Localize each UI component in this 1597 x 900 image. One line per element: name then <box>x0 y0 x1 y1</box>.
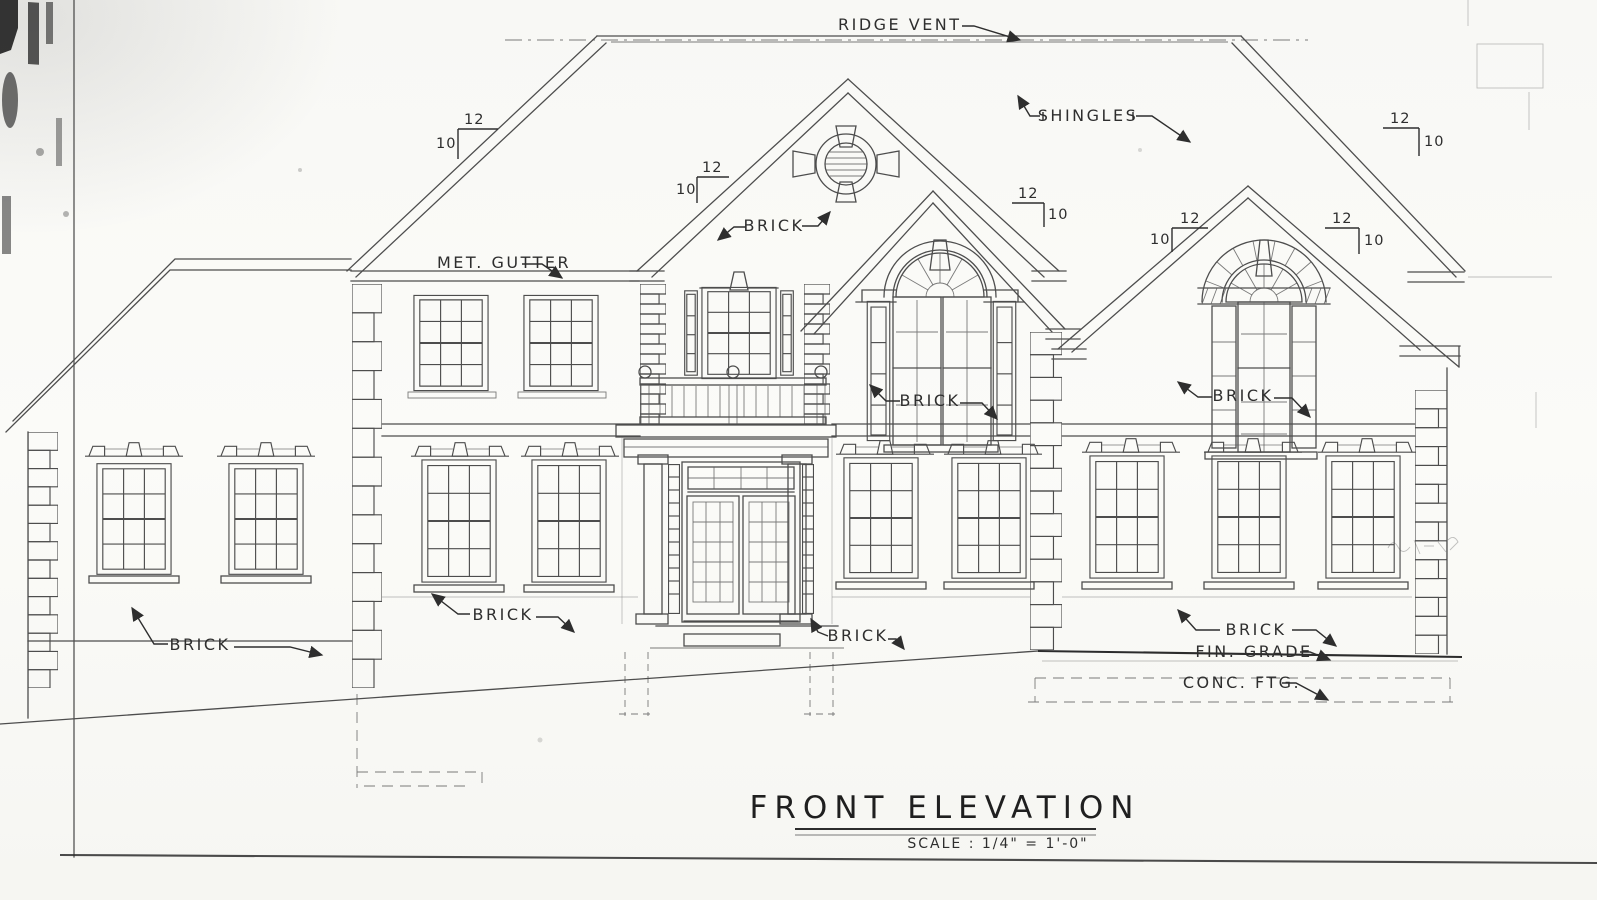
window-lintel <box>1082 439 1180 453</box>
drawing-title: FRONT ELEVATION <box>750 790 1141 826</box>
shutter <box>867 301 890 440</box>
brick-label: BRICK <box>170 635 231 654</box>
shingles-label: SHINGLES <box>1038 106 1138 125</box>
met-gutter-label: MET. GUTTER <box>437 253 571 272</box>
quoin-pilaster <box>640 284 666 424</box>
pitch-rise: 10 <box>676 182 696 198</box>
pitch-run: 12 <box>1390 111 1410 127</box>
window-lower <box>532 460 606 582</box>
brick-label: BRICK <box>744 216 805 235</box>
quoin-strip-left-wing <box>28 432 58 688</box>
main-roof <box>347 36 1465 282</box>
roof-slope-right <box>1241 36 1465 271</box>
brick-leader <box>888 639 904 649</box>
brick-leader <box>1178 610 1220 630</box>
brick-label: BRICK <box>1213 386 1274 405</box>
window-lower <box>1326 456 1400 578</box>
balcony <box>616 366 836 437</box>
round-louver-vent <box>793 126 899 202</box>
arched-window-crown <box>856 240 1024 302</box>
palladian-window <box>1198 240 1330 459</box>
ridge-vent-leader <box>962 26 1020 40</box>
pitch-rise: 10 <box>1424 134 1444 150</box>
brick-jamb <box>802 465 814 614</box>
foundation-dashed <box>357 694 482 788</box>
brick-label: BRICK <box>828 626 889 645</box>
title-block: FRONT ELEVATION SCALE : 1/4" = 1'-0" <box>750 790 1141 852</box>
window-lower <box>844 458 918 578</box>
window-sill <box>221 576 311 583</box>
floor-band <box>832 424 1030 436</box>
gable-rake-left <box>1058 186 1248 352</box>
pitch-marker: 12 10 <box>1383 111 1444 156</box>
brick-leader <box>870 385 900 401</box>
window-sill <box>836 582 926 589</box>
shingles-leader-left <box>1018 96 1040 116</box>
pitch-marker: 12 10 <box>1325 211 1384 254</box>
door-leaf <box>687 496 739 614</box>
window-sill <box>518 392 606 398</box>
shutter <box>993 301 1016 440</box>
window-sill <box>414 585 504 592</box>
window-lintel <box>411 443 509 457</box>
shutter <box>781 291 794 375</box>
window-lower <box>1090 456 1164 578</box>
grade-line <box>0 651 1038 724</box>
door-leaf <box>743 496 795 614</box>
brick-leader <box>132 608 168 644</box>
pitch-marker: 12 10 <box>1012 186 1068 227</box>
brick-label: BRICK <box>473 605 534 624</box>
pitch-run: 12 <box>1332 211 1352 227</box>
pier-footing-dashed <box>619 652 839 716</box>
window-sill <box>89 576 179 583</box>
window-upper <box>524 295 598 390</box>
window <box>97 464 171 575</box>
window-lower <box>952 458 1026 578</box>
window-sill <box>524 585 614 592</box>
pitch-run: 12 <box>1180 211 1200 227</box>
pitch-rise: 10 <box>1150 232 1170 248</box>
window-lower <box>422 460 496 582</box>
shingles-leader-right <box>1136 116 1190 142</box>
entry-pavilion <box>616 79 1066 716</box>
shutter <box>685 291 698 375</box>
fin-grade-label: FIN. GRADE <box>1195 642 1312 661</box>
window-lintel <box>1318 439 1416 453</box>
pitch-run: 12 <box>464 112 484 128</box>
window-lintel <box>85 443 183 457</box>
entry-columns <box>636 455 812 624</box>
brick-leader <box>536 617 574 632</box>
brick-leader <box>718 227 746 240</box>
brick-leader <box>234 647 322 655</box>
pitch-run: 12 <box>702 160 722 176</box>
quoin-strip-main-corner <box>352 284 382 688</box>
gable-rake-left <box>637 79 848 277</box>
roof-slope-left <box>347 36 597 271</box>
twin-window <box>893 297 991 445</box>
entry-steps <box>650 626 844 648</box>
balcony-deck <box>616 425 836 437</box>
window <box>229 464 303 575</box>
pitch-rise: 10 <box>1364 233 1384 249</box>
pitch-rise: 10 <box>1048 207 1068 223</box>
center-right-gable <box>801 191 1080 650</box>
brick-leader <box>811 619 828 636</box>
gable-rake-right <box>933 191 1065 332</box>
scan-box-top-right <box>1477 44 1543 88</box>
gutter-line <box>351 271 639 281</box>
drawing-scale: SCALE : 1/4" = 1'-0" <box>907 836 1088 852</box>
window-lintel <box>1204 439 1302 453</box>
brick-jamb <box>668 465 680 614</box>
brick-label: BRICK <box>900 391 961 410</box>
brick-label: BRICK <box>1226 620 1287 639</box>
entry-entablature <box>624 439 828 457</box>
window-sill <box>1318 582 1408 589</box>
elevation-drawing: RIDGE VENT SHINGLES MET. GUTTER BRICK BR… <box>0 0 1597 900</box>
window-sill <box>408 392 496 398</box>
right-gable <box>1052 186 1460 654</box>
scan-artifacts <box>0 0 1597 863</box>
main-block <box>351 271 640 788</box>
quoin-pilaster-mid <box>1030 332 1062 650</box>
ridge-vent-label: RIDGE VENT <box>838 15 962 34</box>
pitch-rise: 10 <box>436 136 456 152</box>
brick-leader <box>802 212 830 226</box>
quoin-strip-right-corner <box>1415 390 1447 654</box>
floor-band <box>382 424 640 436</box>
window-upper <box>414 295 488 390</box>
left-wing-roof <box>6 259 351 432</box>
window-sill <box>944 582 1034 589</box>
window-lintel <box>521 443 619 457</box>
sidelight <box>1212 306 1236 448</box>
window-sill <box>884 445 998 452</box>
scanned-elevation-sheet: RIDGE VENT SHINGLES MET. GUTTER BRICK BR… <box>0 0 1597 900</box>
window-sill <box>1082 582 1172 589</box>
window-upper <box>702 287 776 378</box>
scan-edge-bottom <box>60 855 1597 863</box>
brick-leader <box>1178 382 1212 397</box>
window-lower <box>1212 456 1286 578</box>
sidelight <box>1292 306 1316 448</box>
pitch-marker: 12 10 <box>676 160 729 203</box>
entry-door <box>682 462 800 622</box>
window-sill <box>1204 582 1294 589</box>
pitch-run: 12 <box>1018 186 1038 202</box>
window-lintel <box>217 443 315 457</box>
